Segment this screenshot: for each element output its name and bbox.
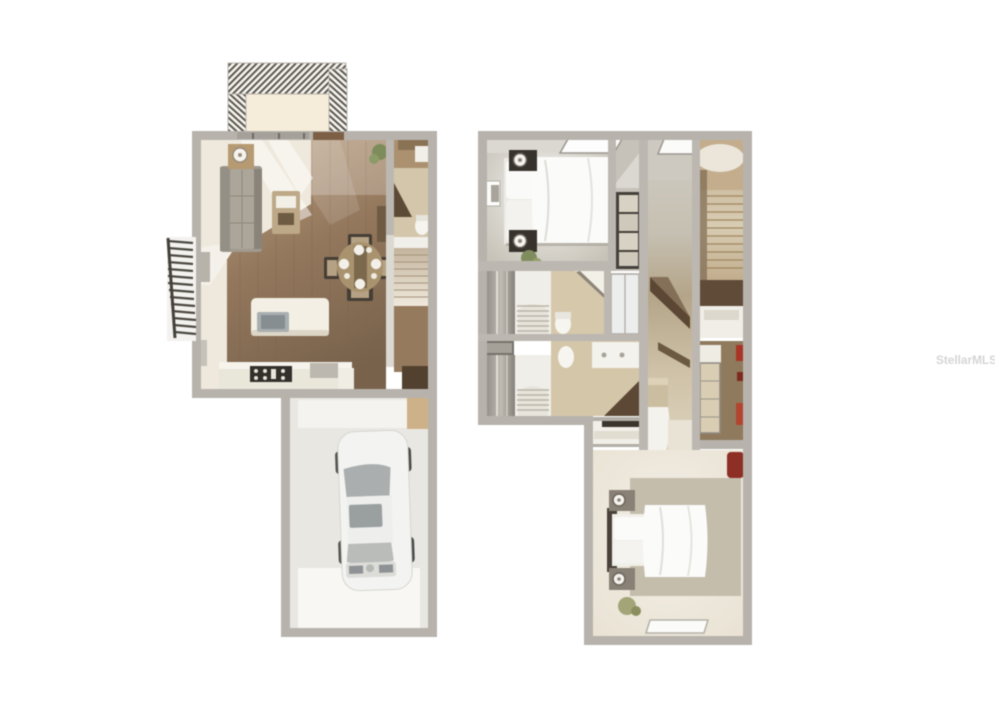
- svg-text:StellarMLS: StellarMLS: [936, 353, 995, 367]
